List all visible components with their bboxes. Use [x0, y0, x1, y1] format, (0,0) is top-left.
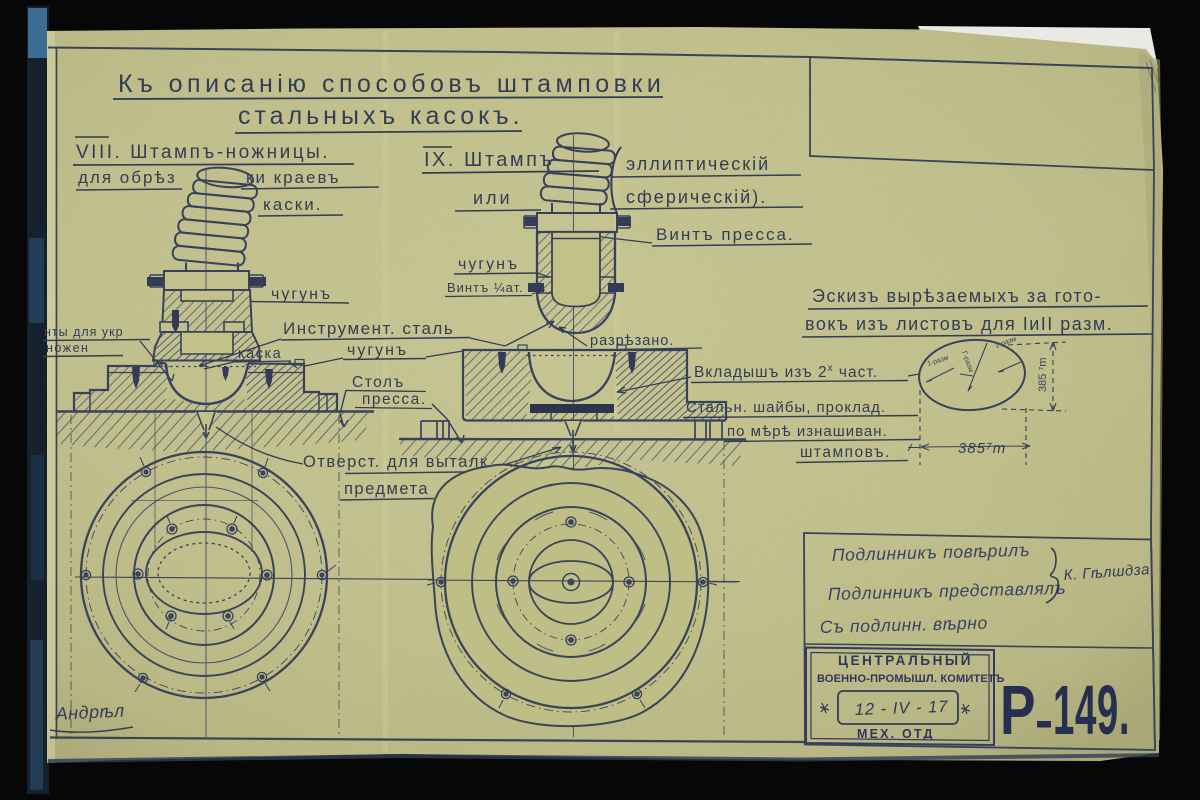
svg-text:Инструмент. сталь: Инструмент. сталь	[283, 319, 454, 338]
svg-text:вокъ изъ листовъ для IиII разм: вокъ изъ листовъ для IиII разм.	[805, 314, 1113, 334]
svg-text:VIII. Штампъ-ножницы.: VIII. Штампъ-ножницы.	[76, 142, 330, 163]
svg-text:ВОЕННО-ПРОМЫШЛ. КОМИТЕТЪ: ВОЕННО-ПРОМЫШЛ. КОМИТЕТЪ	[817, 673, 1005, 685]
svg-text:сферическій).: сферическій).	[626, 187, 767, 207]
svg-text:предмета: предмета	[344, 480, 429, 498]
svg-text:разрѣзано.: разрѣзано.	[590, 333, 674, 349]
svg-text:пресса.: пресса.	[362, 391, 427, 408]
svg-text:385 ⁷m: 385 ⁷m	[1037, 357, 1049, 392]
svg-text:нты для укр: нты для укр	[44, 325, 124, 339]
svg-text:ЦЕНТРАЛЬНЫЙ: ЦЕНТРАЛЬНЫЙ	[838, 653, 973, 668]
svg-text:149.: 149.	[1053, 671, 1130, 749]
svg-text:Винтъ ¼ат.: Винтъ ¼ат.	[447, 280, 524, 295]
svg-text:ножен: ножен	[46, 341, 89, 355]
svg-text:Андрѣл: Андрѣл	[54, 700, 125, 724]
svg-text:385⁷m: 385⁷m	[958, 440, 1006, 457]
svg-text:каски.: каски.	[263, 195, 322, 214]
svg-text:Вкладышъ изъ 2х част.: Вкладышъ изъ 2х част.	[694, 363, 878, 381]
svg-text:по мѣрѣ изнашиван.: по мѣрѣ изнашиван.	[727, 423, 888, 440]
svg-text:Винтъ пресса.: Винтъ пресса.	[656, 225, 795, 244]
svg-text:Р: Р	[1000, 672, 1035, 750]
svg-text:Стальн. шайбы, проклад.: Стальн. шайбы, проклад.	[686, 399, 886, 416]
svg-text:чугунъ: чугунъ	[458, 256, 519, 273]
svg-text:эллиптическій: эллиптическій	[626, 154, 770, 174]
svg-text:чугунъ: чугунъ	[347, 342, 408, 359]
svg-text:штамповъ.: штамповъ.	[800, 444, 891, 461]
svg-text:12 - IV - 17: 12 - IV - 17	[855, 698, 949, 719]
svg-text:МЕХ. ОТД: МЕХ. ОТД	[857, 727, 935, 741]
svg-text:или: или	[473, 188, 513, 208]
svg-text:стальныхъ касокъ.: стальныхъ касокъ.	[238, 102, 524, 130]
svg-text:чугунъ: чугунъ	[271, 286, 332, 303]
svg-text:Столъ: Столъ	[352, 374, 405, 391]
svg-text:для обрѣз: для обрѣз	[78, 168, 177, 187]
svg-text:каска: каска	[238, 346, 282, 362]
svg-text:Эскизъ вырѣзаемыхъ за гото-: Эскизъ вырѣзаемыхъ за гото-	[812, 286, 1102, 306]
svg-text:ки краевъ: ки краевъ	[246, 168, 341, 187]
svg-text:IX. Штампъ: IX. Штампъ	[424, 149, 554, 171]
svg-text:Къ описанію способовъ штамповк: Къ описанію способовъ штамповки	[118, 70, 665, 98]
